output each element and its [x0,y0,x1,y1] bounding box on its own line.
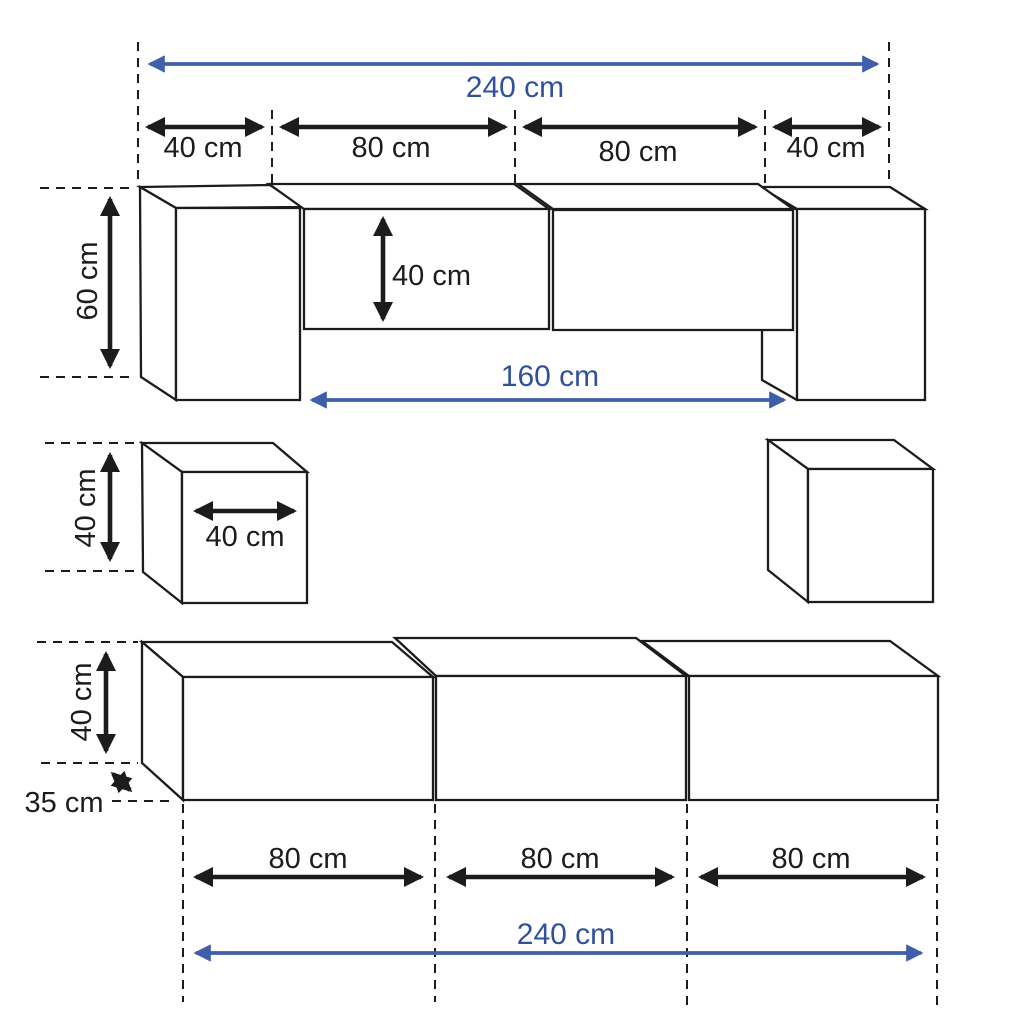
dim-label-bottom-seg2: 80 cm [521,843,600,875]
dim-label-top-seg3: 80 cm [599,136,678,168]
dim-label-bottom-total: 240 cm [517,918,615,951]
low-cabinet-2-front-face [436,676,686,800]
dim-label-row3-height: 40 cm [66,663,98,742]
low-cabinet-3-front-face [689,676,938,800]
hanging-cabinet-2-front-face [553,210,793,330]
low-cabinet-2-top-face [395,638,686,676]
right-tall-cabinet-left-edge [762,331,797,400]
hanging-cabinet-2-top-face [518,184,793,209]
right-cube-side-face [768,440,808,602]
dim-label-top-seg2: 80 cm [352,132,431,164]
dim-label-row1-cabinet-height: 40 cm [392,260,471,292]
dim-label-row3-depth: 35 cm [25,787,104,819]
left-cube-side-face [142,443,182,603]
dim-arrow-row3-depth [113,774,130,790]
low-cabinet-1-top-face [142,642,433,677]
diagram-canvas: 240 cm 40 cm 80 cm 80 cm 40 cm 60 cm 40 … [0,0,1024,1024]
dim-label-top-seg4: 40 cm [787,132,866,164]
dim-label-top-total: 240 cm [466,71,564,104]
low-cabinet-3-top-face [642,641,938,676]
right-tall-cabinet-front-face [797,209,925,400]
left-tall-cabinet-front-face [176,208,300,400]
furniture-dimension-diagram: 240 cm 40 cm 80 cm 80 cm 40 cm 60 cm 40 … [0,0,1024,1024]
left-tall-cabinet-side-face [140,187,176,400]
dim-label-row1-span: 160 cm [501,360,599,393]
dim-label-bottom-seg3: 80 cm [772,843,851,875]
hanging-cabinet-1-top-face [269,184,549,209]
low-cabinet-1-front-face [183,677,433,800]
dim-label-row2-width: 40 cm [206,521,285,553]
dim-label-bottom-seg1: 80 cm [269,843,348,875]
right-cube-front-face [808,469,933,602]
dim-label-row2-height: 40 cm [70,469,102,548]
dim-label-top-seg1: 40 cm [164,132,243,164]
row3-low-cabinets [142,638,938,800]
dim-label-row1-height: 60 cm [72,242,104,321]
